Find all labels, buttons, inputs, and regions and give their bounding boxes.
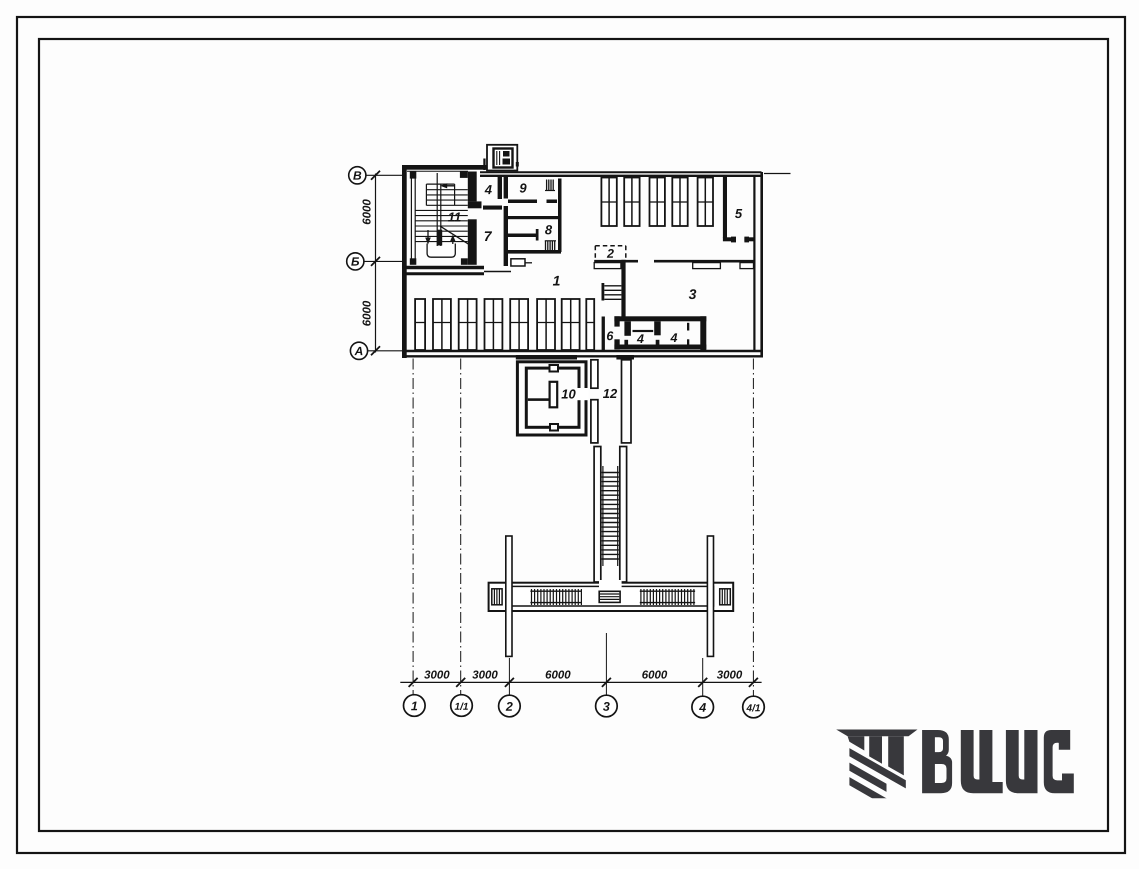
svg-text:6000: 6000	[545, 669, 571, 681]
svg-text:1: 1	[411, 699, 418, 713]
svg-text:6000: 6000	[362, 199, 374, 225]
svg-text:3: 3	[603, 700, 610, 714]
svg-text:4: 4	[484, 182, 493, 197]
svg-text:В: В	[353, 169, 362, 183]
svg-text:5: 5	[735, 206, 743, 221]
svg-text:6: 6	[606, 329, 614, 343]
svg-text:1/1: 1/1	[455, 702, 469, 713]
svg-text:7: 7	[484, 228, 493, 244]
svg-text:3000: 3000	[472, 669, 498, 681]
svg-text:12: 12	[603, 386, 618, 401]
svg-text:9: 9	[519, 180, 527, 195]
svg-text:А: А	[354, 344, 364, 358]
svg-text:4: 4	[636, 332, 644, 346]
svg-text:3: 3	[689, 286, 697, 302]
svg-text:2: 2	[505, 700, 513, 714]
svg-text:4/1: 4/1	[746, 703, 761, 714]
svg-text:8: 8	[545, 222, 553, 237]
svg-text:3000: 3000	[717, 669, 743, 681]
svg-text:11: 11	[448, 209, 462, 224]
svg-text:2: 2	[606, 247, 614, 261]
svg-text:1: 1	[553, 272, 561, 288]
svg-text:6000: 6000	[362, 300, 374, 326]
svg-text:Б: Б	[351, 255, 360, 269]
svg-text:6000: 6000	[642, 669, 668, 681]
svg-text:4: 4	[698, 701, 706, 715]
svg-text:4: 4	[670, 331, 678, 345]
svg-text:10: 10	[561, 386, 576, 401]
svg-text:3000: 3000	[424, 669, 450, 681]
